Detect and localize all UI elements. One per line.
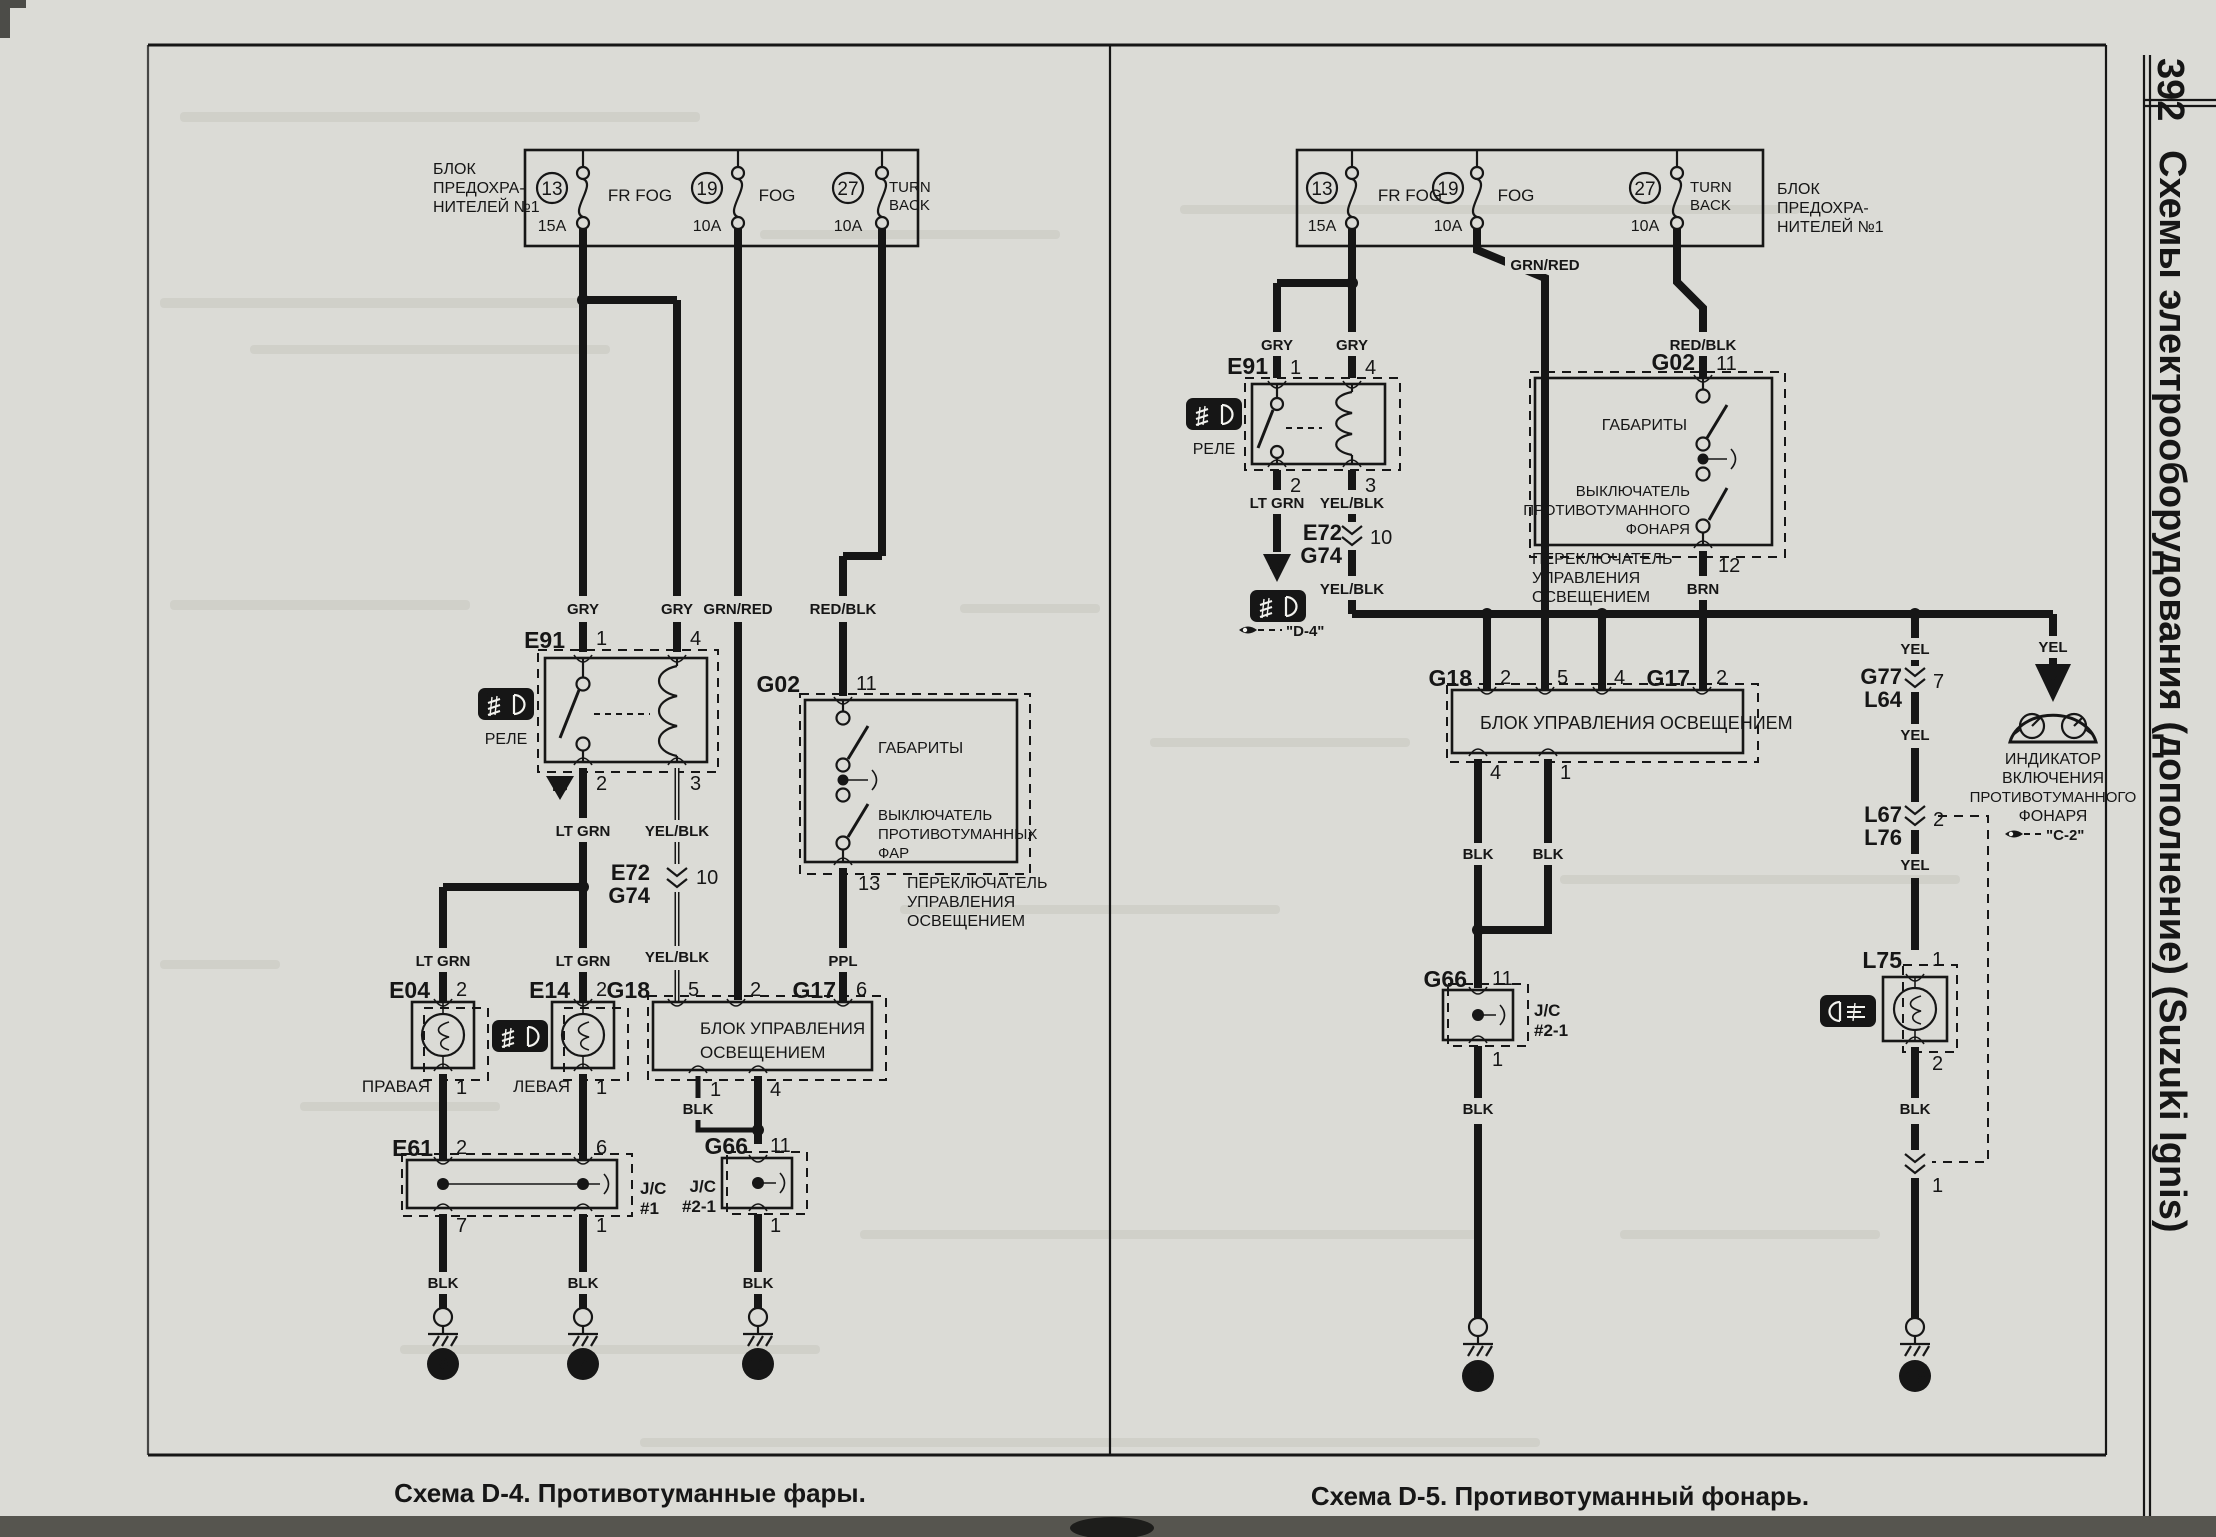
- d4-g66-pin11: 11: [770, 1135, 791, 1157]
- d4-fuse27-name-1: TURN: [889, 179, 931, 196]
- d5-l75-pin2: 2: [1932, 1053, 1943, 1075]
- d5-g18-pin2: 2: [1500, 667, 1511, 689]
- d4-e91-pin4: 4: [690, 628, 701, 650]
- wire-label-gry: GRY: [1261, 337, 1293, 354]
- d5-rfogsw-2: ПРОТИВОТУМАННОГО: [1523, 502, 1690, 519]
- d5-light-control: G18 2 5 4 G17 2 БЛОК УПРАВЛЕНИЯ ОСВЕЩЕНИ…: [1429, 665, 1793, 988]
- d5-l75-pin1: 1: [1932, 949, 1943, 971]
- d4-dims-label: ГАБАРИТЫ: [878, 740, 963, 757]
- d5-g02-switch: G02 11 ГАБАРИТЫ ВЫКЛЮЧАТЕЛЬ ПРОТИВОТУМАН…: [1523, 349, 1785, 690]
- ground-symbol: 9: [427, 1308, 459, 1380]
- d5-g66-pin11: 11: [1492, 968, 1513, 990]
- d4-fuse13-name: FR FOG: [608, 186, 672, 205]
- ground-number-7: 7: [578, 1355, 589, 1376]
- d5-e91-label: E91: [1227, 353, 1268, 379]
- d4-e04-pin2: 2: [456, 979, 467, 1001]
- d5-ind-4: ФОНАРЯ: [2019, 808, 2088, 825]
- d4-fuse19-amp: 10A: [693, 218, 722, 235]
- wire-label-blk: BLK: [1900, 1101, 1931, 1118]
- d4-fogsw-3: ФАР: [878, 845, 909, 862]
- wire-label-gry: GRY: [567, 601, 599, 618]
- d5-l64-label: L64: [1864, 687, 1903, 712]
- d5-fuse19-number: 19: [1437, 179, 1458, 200]
- d5-lsw-1: ПЕРЕКЛЮЧАТЕЛЬ: [1532, 551, 1673, 568]
- d4-lsw-1: ПЕРЕКЛЮЧАТЕЛЬ: [907, 875, 1048, 892]
- page-number: 392: [2149, 58, 2191, 121]
- d4-e61-label: E61: [392, 1135, 433, 1161]
- d4-e61-pin2: 2: [456, 1137, 467, 1159]
- d5-rearfog-icon: [1820, 995, 1876, 1027]
- d4-lsw-2: УПРАВЛЕНИЯ: [907, 894, 1015, 911]
- ground-symbol: 11: [742, 1308, 774, 1380]
- d4-fuse27-name-2: BACK: [889, 197, 930, 214]
- d5-g02-pin12: 12: [1718, 555, 1740, 577]
- d4-e61-junction: E61 2 6 J/C #1 7 1 BLK BLK: [392, 1135, 666, 1308]
- wire-label-blk: BLK: [568, 1275, 599, 1292]
- inline-connector-icon: [1905, 806, 1925, 825]
- ground-number-9: 9: [438, 1355, 449, 1376]
- inline-connector-icon: [1905, 668, 1925, 687]
- d5-fuse-19: 19 10A FOG: [1433, 150, 1534, 235]
- d4-g02-label: G02: [757, 671, 800, 697]
- d4-ctrl-text-1: БЛОК УПРАВЛЕНИЯ: [700, 1019, 865, 1038]
- d4-fuse13-amp: 15A: [538, 218, 567, 235]
- d4-fuse19-number: 19: [696, 179, 717, 200]
- d5-ind-3: ПРОТИВОТУМАННОГО: [1970, 789, 2137, 806]
- d5-dims-label: ГАБАРИТЫ: [1602, 417, 1687, 434]
- d4-e14-label: E14: [529, 977, 570, 1003]
- d5-fuse27-name-2: BACK: [1690, 197, 1731, 214]
- d5-fuse-13: 13 15A FR FOG: [1307, 150, 1442, 235]
- d5-lsw-2: УПРАВЛЕНИЯ: [1532, 570, 1640, 587]
- d5-ind-1: ИНДИКАТОР: [2005, 751, 2101, 768]
- d4-light-control: G18 5 2 G17 6 БЛОК УПРАВЛЕНИЯ ОСВЕЩЕНИЕМ…: [607, 977, 886, 1144]
- d4-lamp-right-label: ПРАВАЯ: [362, 1077, 430, 1096]
- d4-e91-pin1: 1: [596, 628, 607, 650]
- d4-g18-pin2: 2: [750, 979, 761, 1001]
- wire-label-grnred: GRN/RED: [703, 601, 772, 618]
- d5-fuse19-name: FOG: [1498, 186, 1535, 205]
- d5-fuse13-number: 13: [1311, 179, 1332, 200]
- d5-g74-label: G74: [1300, 543, 1342, 568]
- d5-ref-c2: "C-2": [2046, 827, 2084, 844]
- d5-rfogsw-1: ВЫКЛЮЧАТЕЛЬ: [1576, 483, 1690, 500]
- d4-e91-pin3: 3: [690, 773, 701, 795]
- d5-jc21-label: J/C: [1534, 1001, 1560, 1020]
- d4-e14-pin1: 1: [596, 1077, 607, 1099]
- d5-l67-label: L67: [1864, 802, 1902, 827]
- d4-jc1-number: #1: [640, 1199, 659, 1218]
- d4-e04-pin1: 1: [456, 1077, 467, 1099]
- d4-e72-label: E72: [611, 860, 650, 885]
- d4-jc21-label: J/C: [690, 1177, 716, 1196]
- d5-fusebox-label-3: НИТЕЛЕЙ №1: [1777, 217, 1884, 236]
- d5-feed-wires: GRY GRY GRN/RED RED/BLK: [1245, 229, 1743, 690]
- wire-label-blk: BLK: [1533, 846, 1564, 863]
- see-reference-icon: [1239, 627, 1257, 634]
- d4-jc1-label: J/C: [640, 1179, 666, 1198]
- wire-label-blk: BLK: [1463, 846, 1494, 863]
- d4-yelblk-wire: YEL/BLK E72 G74 10 YEL/BLK: [608, 768, 718, 1002]
- d4-ltgrn-wires: LG LT GRN LT GRN LT GRN: [408, 768, 618, 1002]
- d4-e61-pin7: 7: [456, 1215, 467, 1237]
- d4-fusebox-label-2: ПРЕДОХРА-: [433, 180, 525, 197]
- inline-connector-icon: [667, 868, 687, 887]
- wire-label-blk: BLK: [1463, 1101, 1494, 1118]
- d4-fog-lamps: E04 2 ПРАВАЯ 1 E14 2 ЛЕВАЯ 1: [362, 977, 628, 1160]
- d5-l67-pin2: 2: [1933, 809, 1944, 831]
- d5-g66-label: G66: [1424, 966, 1467, 992]
- d5-g18-label: G18: [1429, 665, 1473, 691]
- d5-fusebox-label-2: ПРЕДОХРА-: [1777, 200, 1869, 217]
- y-arrow-label: Y: [2048, 671, 2058, 687]
- wiring-diagram-canvas: FF0 FF0: [0, 0, 2216, 1537]
- d5-relay-icon: [1186, 398, 1242, 430]
- wire-label-blk: BLK: [743, 1275, 774, 1292]
- d4-relay-label: РЕЛЕ: [485, 731, 528, 748]
- d4-g66-junction: G66 11 J/C #2-1 1 BLK: [682, 1133, 807, 1308]
- d5-rfogsw-3: ФОНАРЯ: [1626, 521, 1690, 538]
- d5-rear-fog-lamp: L75 1 2 BLK 1 16: [1820, 947, 1957, 1392]
- d4-g74-label: G74: [608, 883, 650, 908]
- ground-symbol: 16: [1899, 1318, 1931, 1392]
- d5-fuse13-amp: 15A: [1308, 218, 1337, 235]
- diagram-d4: БЛОК ПРЕДОХРА- НИТЕЛЕЙ №1 13 15A FR FOG …: [362, 150, 1048, 1380]
- ground-symbol: 7: [567, 1308, 599, 1380]
- wire-label-blk: BLK: [428, 1275, 459, 1292]
- d4-lsw-3: ОСВЕЩЕНИЕМ: [907, 913, 1025, 930]
- d5-g77-pin7: 7: [1933, 671, 1944, 693]
- d4-e91-pin2: 2: [596, 773, 607, 795]
- sidebar-title: Схемы электрооборудования (дополнение) (…: [2151, 150, 2193, 1233]
- d5-g66-junction: G66 11 J/C #2-1 1 BLK 11: [1424, 966, 1569, 1392]
- d5-conn-pin1: 1: [1932, 1175, 1943, 1197]
- wire-label-yelblk: YEL/BLK: [645, 949, 709, 966]
- wire-label-ltgrn: LT GRN: [416, 953, 471, 970]
- d5-fusebox-label-1: БЛОК: [1777, 181, 1820, 198]
- d4-lamp-left-label: ЛЕВАЯ: [513, 1077, 570, 1096]
- d5-e91-pin1: 1: [1290, 357, 1301, 379]
- d5-e72-label: E72: [1303, 520, 1342, 545]
- lg-triangle-label: LG: [552, 782, 567, 794]
- d5-l76-label: L76: [1864, 825, 1902, 850]
- page-frame: [148, 45, 2216, 1516]
- wire-label-yel: YEL: [1900, 641, 1929, 658]
- wire-label-yel: YEL: [1900, 857, 1929, 874]
- ground-number-11: 11: [748, 1355, 769, 1376]
- d4-e04-label: E04: [389, 977, 430, 1003]
- wire-label-blk: BLK: [683, 1101, 714, 1118]
- d5-lsw-3: ОСВЕЩЕНИЕМ: [1532, 589, 1650, 606]
- d4-ctrl-text-2: ОСВЕЩЕНИЕМ: [700, 1043, 825, 1062]
- d4-relay-icon: [478, 688, 534, 720]
- pin-cups: [574, 655, 686, 765]
- d5-g77-label: G77: [1860, 664, 1902, 689]
- d5-ref-d4: "D-4": [1286, 623, 1324, 640]
- instrument-cluster-icon: [2010, 714, 2096, 742]
- d5-relay-e91: E91 1 4 РЕЛЕ 2 3: [1186, 353, 1400, 497]
- d5-jc21-number: #2-1: [1534, 1021, 1568, 1040]
- d4-fuse-27: 27 10A TURN BACK: [833, 150, 931, 235]
- d5-relay-label: РЕЛЕ: [1193, 441, 1236, 458]
- inline-connector-icon: [1905, 1154, 1925, 1173]
- d4-e61-pin6: 6: [596, 1137, 607, 1159]
- d4-g17-label: G17: [793, 977, 836, 1003]
- d4-fogsw-1: ВЫКЛЮЧАТЕЛЬ: [878, 807, 992, 824]
- caption-schema-d5: Схема D-5. Противотуманный фонарь.: [1311, 1481, 1809, 1511]
- inline-connector-icon: [1342, 526, 1362, 545]
- d4-fogsw-2: ПРОТИВОТУМАННЫХ: [878, 826, 1037, 843]
- d5-foglamp-icon: [1250, 590, 1306, 622]
- wire-label-ltgrn: LT GRN: [1250, 495, 1305, 512]
- d5-g18-pin5: 5: [1557, 667, 1568, 689]
- d4-g02-pin13: 13: [858, 873, 880, 895]
- d4-fuse27-number: 27: [837, 179, 858, 200]
- d5-yel-branch: YEL G77 L64 7 YEL L67 L76 2 YEL: [1860, 614, 1988, 1162]
- ground-number-16: 16: [1904, 1367, 1925, 1388]
- d4-fusebox-label-3: НИТЕЛЕЙ №1: [433, 197, 540, 216]
- wire-label-grnred: GRN/RED: [1510, 257, 1579, 274]
- d5-g66-pin1: 1: [1492, 1049, 1503, 1071]
- d4-ctrl-pin1: 1: [710, 1079, 721, 1101]
- d5-fuse-27: 27 10A TURN BACK: [1630, 150, 1732, 235]
- lg-arrow-label: LG: [1269, 560, 1284, 572]
- d5-g17-pin2: 2: [1716, 667, 1727, 689]
- d4-g17-pin6: 6: [856, 979, 867, 1001]
- d4-g02-pin11: 11: [856, 673, 877, 695]
- wire-label-ltgrn: LT GRN: [556, 953, 611, 970]
- ground-symbol: 11: [1462, 1318, 1494, 1392]
- wire-label-yelblk: YEL/BLK: [1320, 581, 1384, 598]
- wire-label-redblk: RED/BLK: [810, 601, 877, 618]
- d4-grounds: 9 7 11: [427, 1308, 774, 1380]
- d4-fuse19-name: FOG: [759, 186, 796, 205]
- d4-fuse-13: 13 15A FR FOG: [537, 150, 672, 235]
- wire-label-yelblk: YEL/BLK: [645, 823, 709, 840]
- d5-ctrl-pin4: 4: [1490, 762, 1501, 784]
- wire-label-brn: BRN: [1687, 581, 1720, 598]
- d4-g66-pin1: 1: [770, 1215, 781, 1237]
- d4-e72-pin10: 10: [696, 867, 718, 889]
- d4-fuse-19: 19 10A FOG: [692, 150, 795, 235]
- d5-fuse27-name-1: TURN: [1690, 179, 1732, 196]
- d4-fusebox-label-1: БЛОК: [433, 161, 476, 178]
- wire-label-yel: YEL: [1900, 727, 1929, 744]
- d5-ctrl-text: БЛОК УПРАВЛЕНИЯ ОСВЕЩЕНИЕМ: [1480, 713, 1793, 733]
- ground-number-11: 11: [1468, 1367, 1489, 1388]
- d5-fuse19-amp: 10A: [1434, 218, 1463, 235]
- d5-g17-label: G17: [1647, 665, 1690, 691]
- d4-relay-e91: E91 1 4 РЕЛЕ 2 3: [478, 627, 718, 795]
- d5-l75-label: L75: [1862, 947, 1902, 973]
- d4-foglamp-icon: [492, 1020, 548, 1052]
- d4-g18-pin5: 5: [688, 979, 699, 1001]
- wire-label-yel: YEL: [2038, 639, 2067, 656]
- d5-fuse-box: БЛОК ПРЕДОХРА- НИТЕЛЕЙ №1 13 15A FR FOG …: [1297, 150, 1884, 246]
- d5-indicator: YEL Y ИНДИКАТОР ВКЛЮЧЕНИЯ ПРОТИВОТУМАННО…: [1970, 614, 2137, 844]
- wire-label-ppl: PPL: [828, 953, 857, 970]
- d4-fuse27-amp: 10A: [834, 218, 863, 235]
- d5-e72-pin10: 10: [1370, 527, 1392, 549]
- d4-e14-pin2: 2: [596, 979, 607, 1001]
- wire-label-gry: GRY: [1336, 337, 1368, 354]
- see-reference-icon: [2005, 831, 2023, 838]
- d4-jc21-number: #2-1: [682, 1197, 716, 1216]
- caption-schema-d4: Схема D-4. Противотуманные фары.: [394, 1478, 866, 1508]
- wire-label-yelblk: YEL/BLK: [1320, 495, 1384, 512]
- d4-fuse-box: БЛОК ПРЕДОХРА- НИТЕЛЕЙ №1 13 15A FR FOG …: [433, 150, 931, 246]
- d5-g18-pin4: 4: [1614, 667, 1625, 689]
- d4-g18-label: G18: [607, 977, 651, 1003]
- d4-fuse13-number: 13: [541, 179, 562, 200]
- wire-label-ltgrn: LT GRN: [556, 823, 611, 840]
- d5-fuse27-amp: 10A: [1631, 218, 1660, 235]
- d5-e91-pin4: 4: [1365, 357, 1376, 379]
- d5-ind-2: ВКЛЮЧЕНИЯ: [2002, 770, 2104, 787]
- diagram-d5: БЛОК ПРЕДОХРА- НИТЕЛЕЙ №1 13 15A FR FOG …: [1186, 150, 2136, 1392]
- d4-ctrl-pin4: 4: [770, 1079, 781, 1101]
- d4-e61-pin1: 1: [596, 1215, 607, 1237]
- d4-g02-switch: G02 11 ГАБАРИТЫ ВЫКЛЮЧАТЕЛЬ ПРОТИВОТУМАН…: [757, 671, 1048, 1002]
- d5-fuse27-number: 27: [1634, 179, 1655, 200]
- d5-ctrl-pin1: 1: [1560, 762, 1571, 784]
- scanned-manual-page: FF0 FF0: [0, 0, 2216, 1537]
- sidebar: 392 Схемы электрооборудования (дополнени…: [2149, 58, 2193, 1233]
- wire-label-gry: GRY: [661, 601, 693, 618]
